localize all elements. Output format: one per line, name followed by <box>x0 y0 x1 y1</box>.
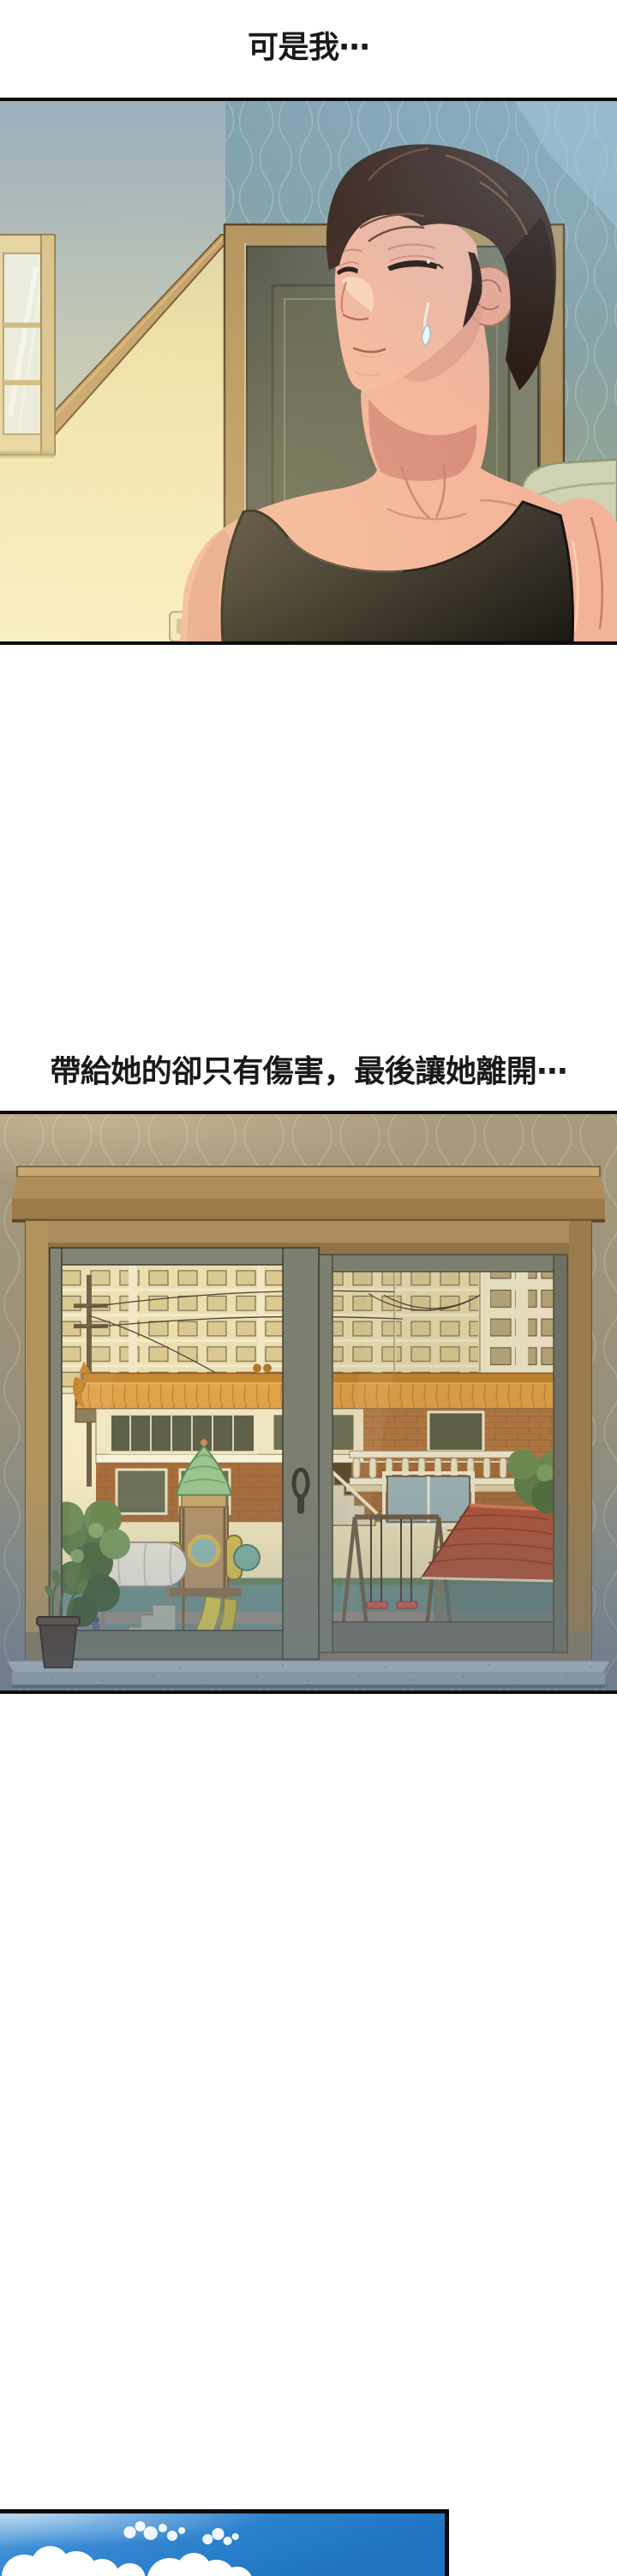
sky-illustration <box>0 2513 445 2576</box>
caption-top: 可是我⋯ <box>0 27 617 69</box>
bedroom-illustration <box>0 101 617 641</box>
window-illustration <box>0 1114 617 1690</box>
panel-window-scene <box>0 1111 617 1694</box>
caption-middle: 帶給她的卻只有傷害，最後讓她離開⋯ <box>0 1052 617 1093</box>
window-cornice <box>12 1166 605 1222</box>
panel-bedroom-scene <box>0 98 617 645</box>
panel-sky-scene <box>0 2509 449 2576</box>
webtoon-page: 可是我⋯ <box>0 0 617 2576</box>
